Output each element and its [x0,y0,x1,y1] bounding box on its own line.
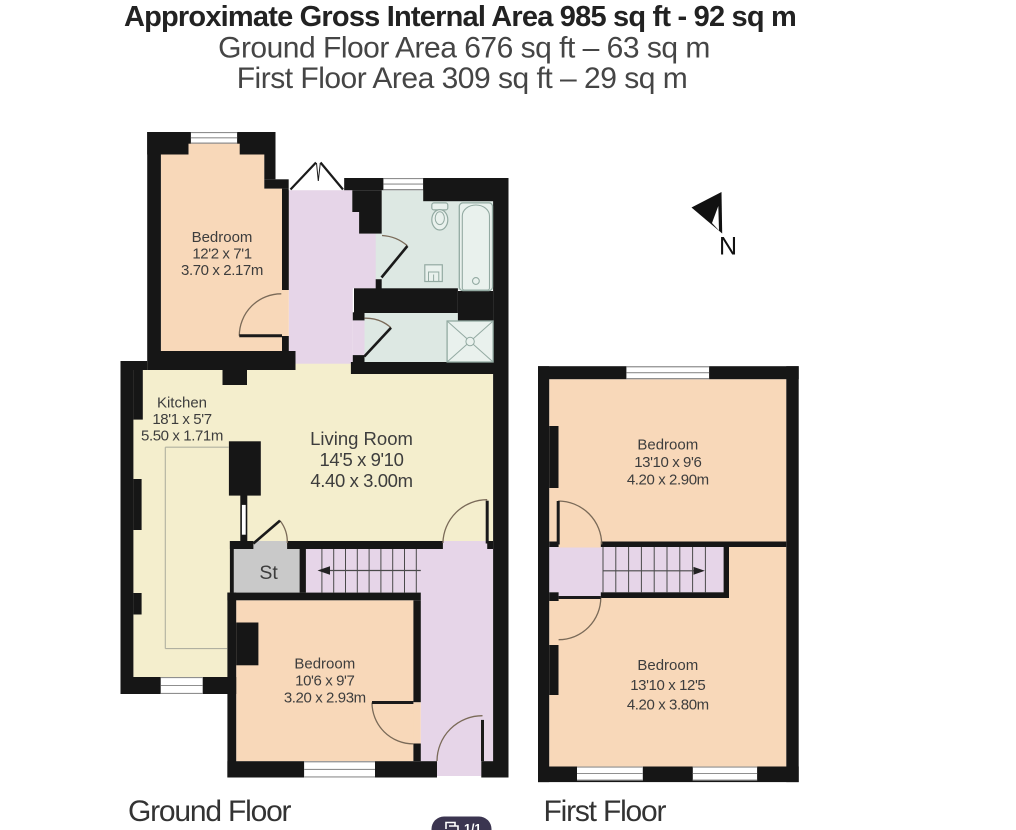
svg-text:Kitchen: Kitchen [157,395,207,412]
svg-text:1/1: 1/1 [464,822,481,830]
svg-text:10'6 x 9'7: 10'6 x 9'7 [295,672,354,689]
svg-text:Bedroom: Bedroom [294,656,355,673]
svg-text:3.70 x 2.17m: 3.70 x 2.17m [181,262,263,279]
svg-text:4.40 x 3.00m: 4.40 x 3.00m [310,470,412,491]
svg-text:Approximate Gross Internal Are: Approximate Gross Internal Area 985 sq f… [124,1,796,33]
svg-text:Ground Floor Area 676 sq ft –: Ground Floor Area 676 sq ft – 63 sq m [218,32,710,65]
svg-text:12'2 x 7'1: 12'2 x 7'1 [192,245,251,262]
svg-text:13'10 x 12'5: 13'10 x 12'5 [630,677,705,694]
svg-text:First Floor Area 309 sq ft – 2: First Floor Area 309 sq ft – 29 sq m [237,62,688,95]
svg-text:5.50 x 1.71m: 5.50 x 1.71m [141,427,223,444]
svg-text:St: St [259,562,278,584]
svg-text:4.20 x 2.90m: 4.20 x 2.90m [627,471,709,488]
svg-text:Bedroom: Bedroom [192,229,253,246]
svg-text:Living Room: Living Room [310,428,413,449]
svg-text:14'5 x 9'10: 14'5 x 9'10 [320,449,404,470]
svg-text:3.20 x 2.93m: 3.20 x 2.93m [284,689,366,706]
svg-text:Ground Floor: Ground Floor [128,795,292,828]
svg-text:4.20 x 3.80m: 4.20 x 3.80m [627,697,709,714]
svg-text:13'10 x 9'6: 13'10 x 9'6 [634,454,701,471]
svg-text:Bedroom: Bedroom [637,657,698,674]
svg-text:N: N [719,233,737,261]
svg-text:18'1 x 5'7: 18'1 x 5'7 [152,411,211,428]
svg-text:First Floor: First Floor [544,795,667,828]
svg-text:Bedroom: Bedroom [637,436,698,453]
